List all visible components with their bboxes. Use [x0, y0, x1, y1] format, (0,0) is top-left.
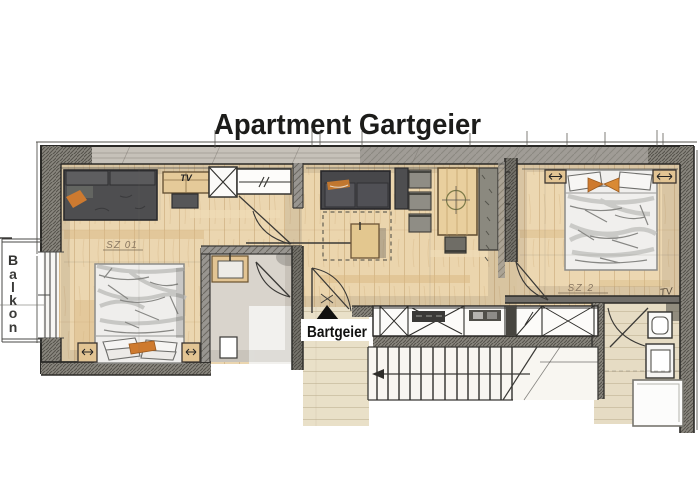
svg-text:Bartgeier: Bartgeier [307, 324, 367, 341]
svg-text:TV: TV [180, 173, 192, 183]
svg-text:n: n [9, 319, 18, 335]
svg-text:Apartment Gartgeier: Apartment Gartgeier [214, 109, 481, 141]
svg-text:SZ 01: SZ 01 [106, 240, 138, 251]
svg-text:SZ 2: SZ 2 [567, 283, 594, 294]
